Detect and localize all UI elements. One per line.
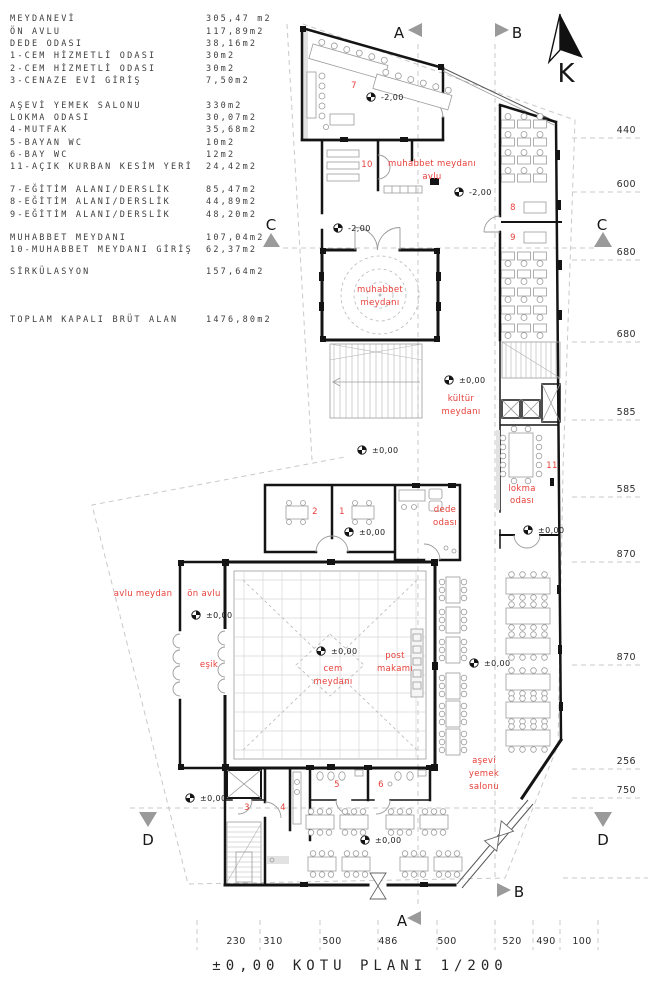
- room-label-4: 4: [280, 803, 286, 813]
- label-kultur-meydani: kültür: [448, 394, 475, 404]
- label-esik: eşik: [200, 660, 218, 670]
- label-muhabbet-avlu: avlu: [422, 172, 441, 182]
- section-marker-d-right: D: [597, 831, 609, 849]
- label-muhabbet-meydani: meydanı: [361, 298, 400, 308]
- room-label-11: 11: [546, 461, 557, 471]
- label-cem-meydani: meydanı: [314, 677, 353, 687]
- dim-right: 870: [617, 652, 636, 663]
- north-arrow: K: [549, 14, 583, 89]
- dim-bottom: 230: [226, 936, 245, 947]
- room-label-9: 9: [510, 233, 516, 243]
- label-post-makami: post: [385, 651, 405, 661]
- dim-bottom: 100: [572, 936, 591, 947]
- section-marker-c-left: C: [266, 216, 276, 234]
- dim-bottom: 520: [502, 936, 521, 947]
- label-muhabbet-avlu: muhabbet meydanı: [388, 159, 476, 169]
- room-label-3: 3: [244, 803, 250, 813]
- section-marker-a-bottom: A: [397, 912, 408, 930]
- elevation-text: ±0,00: [538, 526, 565, 535]
- label-lokma-odasi: odası: [510, 496, 534, 506]
- muhabbet-meydani: muhabbet meydanı -2,00: [319, 224, 441, 342]
- section-marker-b-top: B: [512, 24, 522, 42]
- room-label-1: 1: [339, 507, 345, 517]
- room-label-5: 5: [334, 780, 340, 790]
- elevation-text: ±0,00: [200, 794, 227, 803]
- label-cem-meydani: cem: [323, 664, 342, 674]
- label-dede-odasi: dede: [434, 505, 456, 515]
- room-label-6: 6: [378, 780, 384, 790]
- elevation-text: -2,00: [381, 93, 404, 102]
- dim-right: 585: [617, 407, 636, 418]
- dim-bottom: 310: [263, 936, 282, 947]
- elevation-text: ±0,00: [359, 528, 386, 537]
- room-label-8: 8: [510, 203, 516, 213]
- elevation-text: ±0,00: [375, 836, 402, 845]
- dim-right: 585: [617, 484, 636, 495]
- dim-right: 680: [617, 329, 636, 340]
- room-label-2: 2: [312, 507, 318, 517]
- section-marker-a-top: A: [394, 24, 405, 42]
- dim-bottom: 490: [536, 936, 555, 947]
- dim-right: 440: [617, 125, 636, 136]
- label-dede-odasi: odası: [433, 518, 457, 528]
- cem-meydani: ±0,00 cem meydanı post makamı eşik: [200, 559, 438, 771]
- dim-right: 680: [617, 247, 636, 258]
- north-label: K: [557, 59, 575, 89]
- label-post-makami: makamı: [377, 664, 413, 674]
- room-label-7: 7: [351, 81, 357, 91]
- elevation-text: ±0,00: [372, 446, 399, 455]
- dim-right: 256: [617, 756, 636, 767]
- label-asevi-yemek-salonu: aşevi: [472, 756, 496, 766]
- dim-bottom: 500: [322, 936, 341, 947]
- elevation-text: ±0,00: [459, 376, 486, 385]
- label-kultur-meydani: meydanı: [442, 407, 481, 417]
- elevation-text: -2,00: [348, 224, 371, 233]
- label-muhabbet-meydani: muhabbet: [357, 285, 403, 295]
- section-marker-d-left: D: [142, 831, 154, 849]
- label-on-avlu: ön avlu: [187, 589, 220, 599]
- dim-right: 870: [617, 549, 636, 560]
- label-asevi-yemek-salonu: yemek: [469, 769, 499, 779]
- section-marker-c-right: C: [597, 216, 607, 234]
- rooms-1-2-dede: 2 1 ±0,00 dede odası: [265, 483, 460, 560]
- label-lokma-odasi: lokma: [508, 484, 535, 494]
- elevation-text: ±0,00: [484, 659, 511, 668]
- room-10-block: 10 muhabbet meydanı avlu -2,00: [302, 140, 492, 250]
- kultur-stairs: ±0,00 kültür meydanı ±0,00: [330, 344, 486, 455]
- dim-bottom: 486: [378, 936, 397, 947]
- elevation-text: ±0,00: [331, 647, 358, 656]
- architectural-plan-sheet: MEYDANEVİ305,47 m2 ÖN AVLU117,89m2 DEDE …: [0, 0, 649, 1000]
- elevation-text: -2,00: [469, 188, 492, 197]
- dim-right: 600: [617, 179, 636, 190]
- room-label-10: 10: [361, 160, 372, 170]
- section-marker-b-bottom: B: [514, 883, 524, 901]
- asevi-salon: ±0,00 aşevi yemek salonu: [439, 572, 563, 888]
- floor-plan-svg: 7 -2,00 8 9: [0, 0, 649, 1000]
- lokma-odasi: lokma odası 11 ±0,00: [496, 426, 565, 548]
- dim-bottom: 500: [437, 936, 456, 947]
- label-asevi-yemek-salonu: salonu: [469, 782, 499, 792]
- service-block-bottom: 3 4 5 6 ±0,00 ±0,00: [186, 765, 462, 899]
- dim-right: 750: [617, 785, 636, 796]
- site-boundary: [92, 24, 648, 884]
- sheet-title: ±0,00 KOTU PLANI 1/200: [150, 958, 570, 974]
- elevation-text: ±0,00: [206, 611, 233, 620]
- label-avlu-meydan: avlu meydan: [114, 589, 173, 599]
